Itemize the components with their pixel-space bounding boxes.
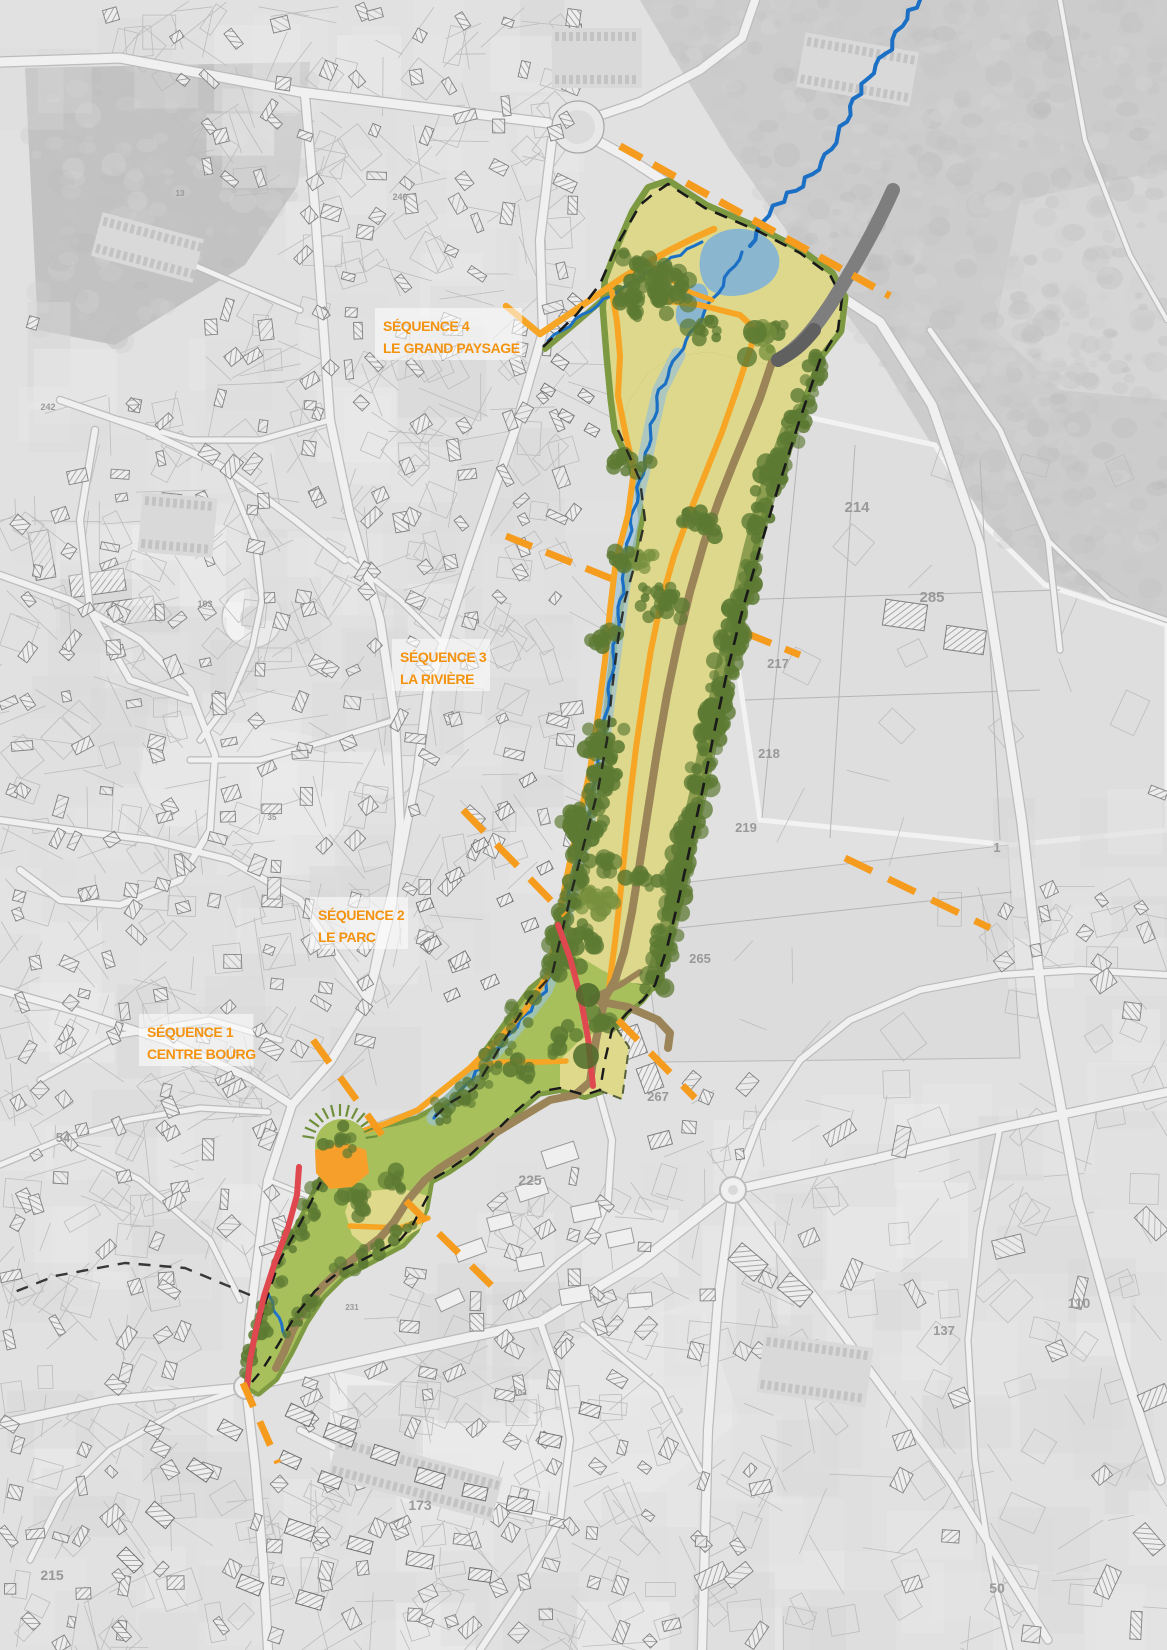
svg-text:215: 215: [40, 1567, 64, 1583]
svg-text:102: 102: [513, 1388, 527, 1397]
svg-text:225: 225: [518, 1172, 542, 1188]
svg-text:219: 219: [735, 820, 757, 835]
svg-text:SÉQUENCE 4: SÉQUENCE 4: [383, 318, 470, 334]
svg-text:173: 173: [408, 1497, 432, 1513]
svg-text:217: 217: [767, 656, 789, 671]
svg-text:1: 1: [993, 840, 1000, 855]
svg-text:LE GRAND PAYSAGE: LE GRAND PAYSAGE: [383, 340, 520, 356]
svg-text:246: 246: [392, 192, 407, 202]
svg-text:35: 35: [268, 813, 277, 822]
svg-text:285: 285: [919, 589, 944, 606]
svg-text:242: 242: [40, 402, 55, 412]
svg-text:267: 267: [647, 1089, 669, 1104]
svg-text:SÉQUENCE 1: SÉQUENCE 1: [147, 1024, 234, 1040]
svg-text:103: 103: [197, 599, 212, 609]
svg-text:214: 214: [844, 499, 870, 516]
svg-text:LA RIVIÈRE: LA RIVIÈRE: [400, 671, 474, 687]
svg-text:LE PARC: LE PARC: [318, 929, 376, 945]
svg-text:13: 13: [176, 189, 185, 198]
svg-text:CENTRE BOURG: CENTRE BOURG: [147, 1046, 256, 1062]
svg-text:231: 231: [345, 1303, 359, 1312]
svg-text:SÉQUENCE 3: SÉQUENCE 3: [400, 649, 487, 665]
svg-text:265: 265: [689, 951, 711, 966]
svg-text:218: 218: [758, 746, 780, 761]
svg-text:110: 110: [1068, 1295, 1091, 1311]
svg-text:54: 54: [56, 1130, 71, 1145]
svg-text:50: 50: [989, 1580, 1005, 1596]
svg-text:137: 137: [933, 1323, 955, 1338]
svg-text:SÉQUENCE 2: SÉQUENCE 2: [318, 907, 405, 923]
